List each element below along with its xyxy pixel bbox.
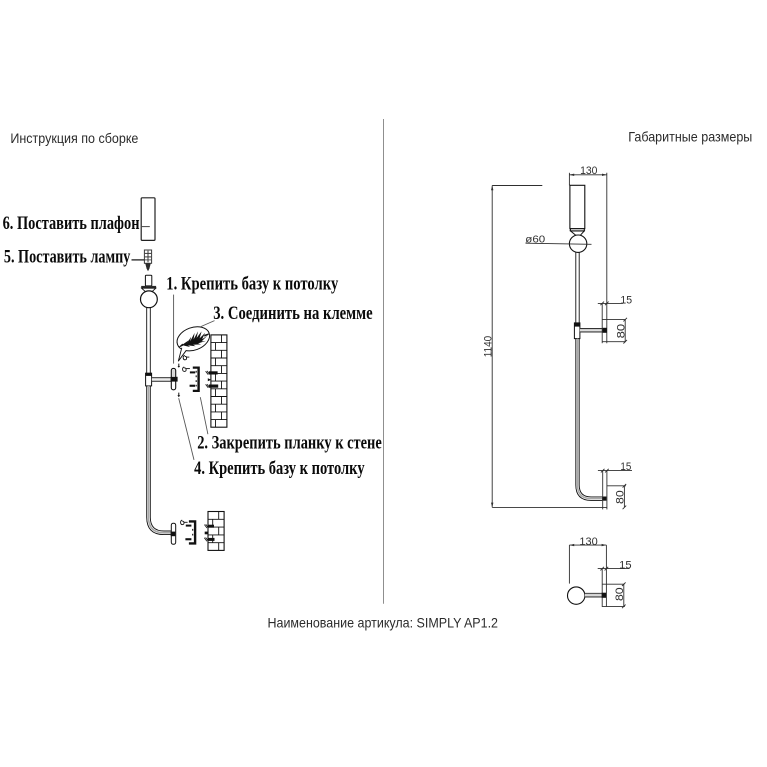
svg-text:1140: 1140 <box>482 336 494 358</box>
svg-text:2. Закрепить планку к стене: 2. Закрепить планку к стене <box>197 433 382 453</box>
svg-text:80: 80 <box>615 490 627 504</box>
svg-text:4. Крепить базу к потолку: 4. Крепить базу к потолку <box>194 459 365 479</box>
svg-text:15: 15 <box>620 294 632 306</box>
svg-text:15: 15 <box>620 461 631 473</box>
svg-text:6. Поставить плафон: 6. Поставить плафон <box>3 214 140 234</box>
svg-text:15: 15 <box>619 559 631 571</box>
svg-text:Габаритные размеры: Габаритные размеры <box>628 129 752 145</box>
svg-text:Наименование артикула: SIMPLY: Наименование артикула: SIMPLY AP1.2 <box>268 615 499 631</box>
svg-text:80: 80 <box>615 324 627 339</box>
svg-text:Инструкция по сборке: Инструкция по сборке <box>10 130 138 146</box>
svg-text:3. Соединить на клемме: 3. Соединить на клемме <box>213 304 373 324</box>
svg-text:5. Поставить лампу: 5. Поставить лампу <box>4 248 131 268</box>
svg-text:80: 80 <box>614 587 626 601</box>
svg-text:130: 130 <box>579 536 597 548</box>
svg-text:1. Крепить базу к потолку: 1. Крепить базу к потолку <box>166 274 339 294</box>
